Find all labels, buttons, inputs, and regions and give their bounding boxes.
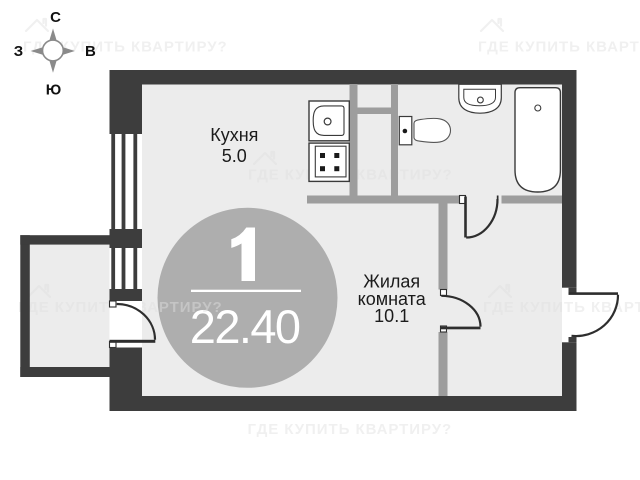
svg-text:5.0: 5.0 — [222, 146, 247, 166]
svg-text:Кухня: Кухня — [210, 125, 258, 145]
svg-text:С: С — [50, 9, 61, 26]
svg-text:10.1: 10.1 — [374, 306, 409, 326]
svg-text:З: З — [14, 43, 23, 60]
svg-text:Ю: Ю — [46, 81, 61, 98]
svg-text:ГДЕ КУПИТЬ КВАРТИРУ?: ГДЕ КУПИТЬ КВАРТИРУ? — [248, 421, 453, 438]
svg-text:ГДЕ КУПИТЬ КВАРТИРУ?: ГДЕ КУПИТЬ КВАРТИРУ? — [478, 39, 640, 56]
svg-text:В: В — [85, 43, 96, 60]
